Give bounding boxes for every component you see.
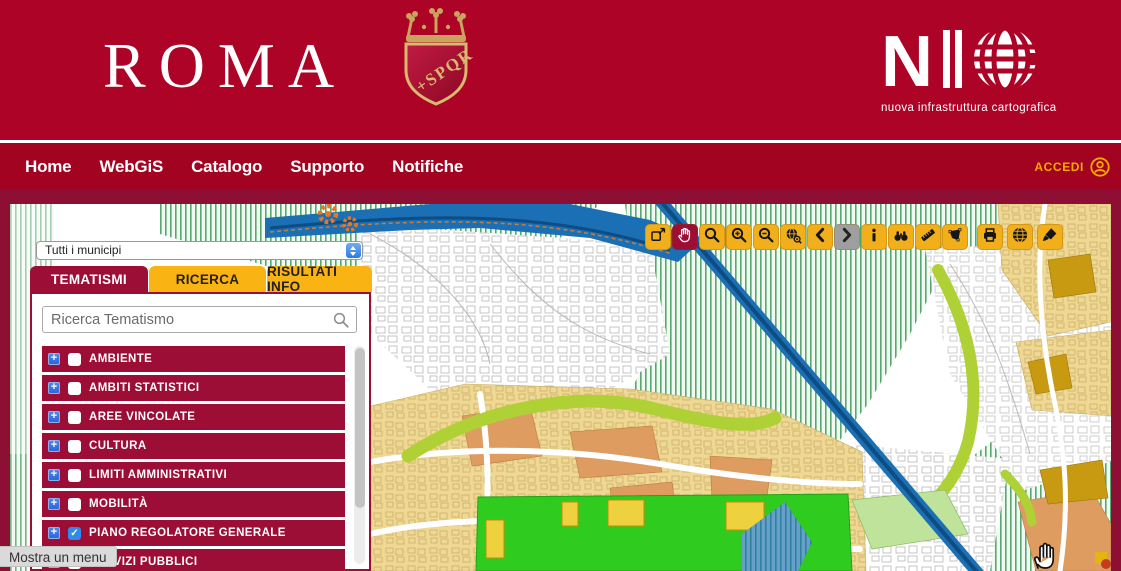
layer-panel: AMBIENTEAMBITI STATISTICIAREE VINCOLATEC… (30, 292, 371, 571)
nav-item-home[interactable]: Home (25, 157, 71, 177)
main-nav: HomeWebGiSCatalogoSupportoNotifiche ACCE… (0, 140, 1121, 190)
layer-checkbox[interactable] (68, 469, 81, 482)
select-area-button[interactable] (942, 224, 968, 250)
app-header: ROMA +SPQR N (0, 0, 1121, 140)
search-icon (332, 311, 350, 329)
nav-item-supporto[interactable]: Supporto (290, 157, 364, 177)
globe-c-icon (974, 28, 1041, 90)
polygon-icon (946, 226, 964, 249)
layer-row[interactable]: PIANO REGOLATORE GENERALE (42, 520, 345, 546)
zoom-icon (703, 226, 721, 249)
layer-label: CULTURA (89, 440, 147, 452)
measure-button[interactable] (915, 224, 941, 250)
layer-checkbox[interactable] (68, 353, 81, 366)
binoculars-icon (892, 226, 910, 249)
roma-wordmark: ROMA (103, 14, 347, 118)
layer-row[interactable]: CULTURA (42, 433, 345, 459)
full-extent-button[interactable] (780, 224, 806, 250)
identify-button[interactable] (861, 224, 887, 250)
panel-scrollbar[interactable] (354, 346, 365, 564)
municipality-select-value: Tutti i municipi (45, 243, 121, 257)
expand-plus-icon[interactable] (48, 382, 60, 394)
toggle-size-button[interactable] (645, 224, 671, 250)
chevron-right-icon (838, 226, 856, 249)
chevron-left-icon (811, 226, 829, 249)
layer-row[interactable]: AMBIENTE (42, 346, 345, 372)
full-extent-icon (784, 226, 802, 249)
tab-ricerca[interactable]: RICERCA (149, 266, 266, 292)
layer-row[interactable]: AMBITI STATISTICI (42, 375, 345, 401)
login-button[interactable]: ACCEDI (1034, 143, 1111, 190)
map-toolbar (645, 224, 969, 250)
expand-plus-icon[interactable] (48, 527, 60, 539)
layer-checkbox[interactable] (68, 440, 81, 453)
zoom-out-button[interactable] (753, 224, 779, 250)
layer-label: AREE VINCOLATE (89, 411, 195, 423)
globe-grid-icon (1011, 226, 1029, 249)
layer-checkbox[interactable] (68, 527, 81, 540)
zoom-in-icon (730, 226, 748, 249)
nav-item-catalogo[interactable]: Catalogo (191, 157, 262, 177)
layer-row[interactable]: LIMITI AMMINISTRATIVI (42, 462, 345, 488)
nav-item-webgis[interactable]: WebGiS (99, 157, 163, 177)
expand-plus-icon[interactable] (48, 353, 60, 365)
layer-label: AMBIENTE (89, 353, 152, 365)
show-menu-tooltip: Mostra un menu (0, 546, 117, 567)
nic-logo: N nuova infrastruttura cartografica (881, 26, 1061, 114)
layer-checkbox[interactable] (68, 411, 81, 424)
layer-row[interactable]: MOBILITÀ (42, 491, 345, 517)
search-input[interactable] (42, 306, 357, 333)
nav-item-notifiche[interactable]: Notifiche (392, 157, 463, 177)
crown-icon (406, 8, 466, 42)
expand-icon (649, 226, 667, 249)
print-button[interactable] (977, 224, 1003, 250)
panel-tabs: TEMATISMIRICERCARISULTATI INFO (30, 266, 373, 292)
globe-button[interactable] (1007, 224, 1033, 250)
tab-risultati-info[interactable]: RISULTATI INFO (267, 266, 372, 292)
spqr-crest: +SPQR (394, 5, 478, 111)
layer-label: PIANO REGOLATORE GENERALE (89, 527, 286, 539)
printer-icon (981, 226, 999, 249)
login-label: ACCEDI (1034, 160, 1084, 174)
layer-row[interactable]: AREE VINCOLATE (42, 404, 345, 430)
expand-plus-icon[interactable] (48, 498, 60, 510)
select-stepper-icon[interactable] (346, 243, 361, 258)
output-toolbar (977, 224, 1067, 250)
municipality-select[interactable]: Tutti i municipi (36, 241, 363, 260)
hand-icon (676, 226, 694, 249)
info-icon (865, 226, 883, 249)
next-extent-button (834, 224, 860, 250)
nic-letter-n: N (881, 26, 933, 94)
tab-tematismi[interactable]: TEMATISMI (30, 266, 148, 292)
expand-plus-icon[interactable] (48, 411, 60, 423)
ruler-icon (919, 226, 937, 249)
expand-plus-icon[interactable] (48, 469, 60, 481)
layer-checkbox[interactable] (68, 382, 81, 395)
brush-icon (1041, 226, 1059, 249)
expand-plus-icon[interactable] (48, 440, 60, 452)
zoom-in-button[interactable] (726, 224, 752, 250)
layer-checkbox[interactable] (68, 498, 81, 511)
find-button[interactable] (888, 224, 914, 250)
scrollbar-thumb[interactable] (355, 348, 365, 508)
layer-label: AMBITI STATISTICI (89, 382, 200, 394)
pan-cursor-icon (1028, 540, 1060, 571)
previous-extent-button[interactable] (807, 224, 833, 250)
zoom-out-icon (757, 226, 775, 249)
style-brush-button[interactable] (1037, 224, 1063, 250)
nic-subtitle: nuova infrastruttura cartografica (881, 102, 1061, 114)
layer-label: MOBILITÀ (89, 498, 148, 510)
zoom-window-button[interactable] (699, 224, 725, 250)
layer-label: LIMITI AMMINISTRATIVI (89, 469, 227, 481)
pan-button[interactable] (672, 224, 698, 250)
user-circle-icon (1089, 156, 1111, 178)
